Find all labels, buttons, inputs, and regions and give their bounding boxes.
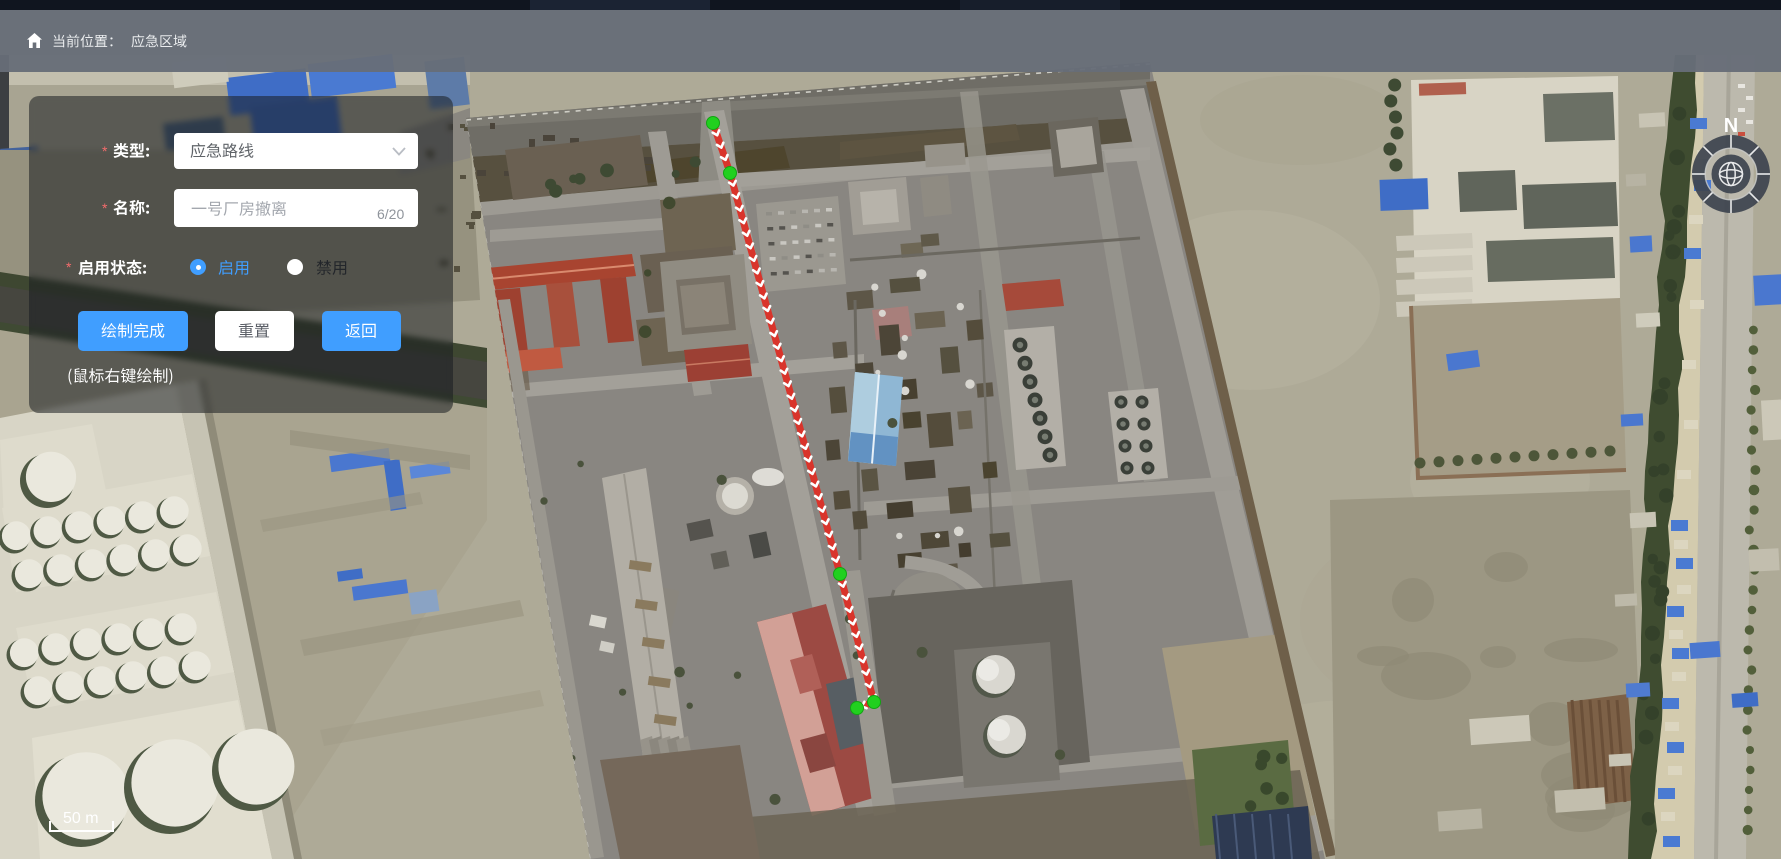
svg-text:N: N	[1724, 115, 1738, 137]
svg-text:50 m: 50 m	[63, 810, 99, 827]
